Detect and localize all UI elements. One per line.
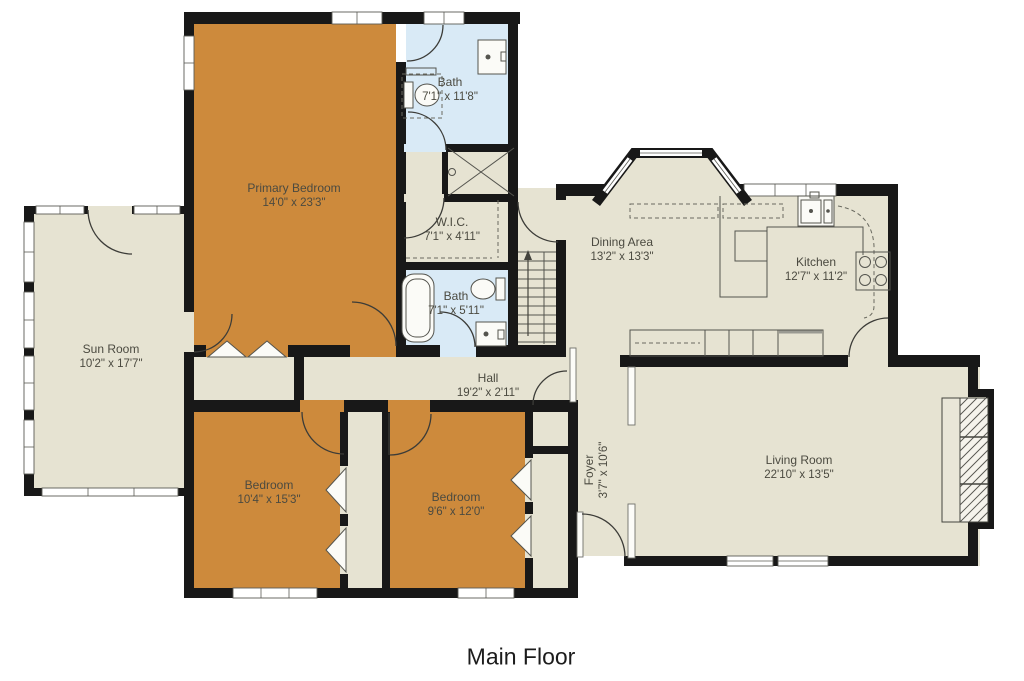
room-dims: 13'2" x 13'3" (590, 250, 653, 265)
kitchen-sink-icon (798, 192, 834, 226)
floor-plan-page: Primary Bedroom 14'0" x 23'3" Bath 7'1" … (0, 0, 1024, 681)
room-label-living-room: Living Room 22'10" x 13'5" (764, 453, 833, 483)
room-label-foyer: Foyer 3'7" x 10'6" (582, 442, 612, 499)
vanity-sink-icon (476, 322, 506, 346)
room-dims: 10'4" x 15'3" (237, 493, 300, 508)
room-dims: 7'1" x 11'8" (422, 90, 478, 105)
room-dims: 9'6" x 12'0" (428, 505, 485, 520)
window (332, 12, 382, 24)
room-name: Dining Area (590, 235, 653, 250)
room-label-hall: Hall 19'2" x 2'11" (457, 371, 519, 401)
window (184, 36, 194, 90)
room-label-sun-room: Sun Room 10'2" x 17'7" (79, 342, 142, 372)
room-name: Bath (422, 75, 478, 90)
room-label-dining-area: Dining Area 13'2" x 13'3" (590, 235, 653, 265)
room-dims: 14'0" x 23'3" (247, 196, 340, 211)
room-name: Bath (428, 289, 484, 304)
room-dims: 10'2" x 17'7" (79, 357, 142, 372)
room-name: Bedroom (428, 490, 485, 505)
fireplace-icon (942, 398, 988, 522)
floor-plan-drawing (0, 0, 1024, 681)
room-name: Foyer (582, 442, 597, 499)
window (744, 184, 836, 196)
room-label-wic: W.I.C. 7'1" x 4'11" (424, 215, 480, 245)
window (424, 12, 464, 24)
room-label-bath-2: Bath 7'1" x 5'11" (428, 289, 484, 319)
window (24, 222, 34, 474)
front-door-leaf (577, 512, 583, 557)
room-dims: 12'7" x 11'2" (785, 270, 847, 285)
shower-icon (478, 40, 506, 74)
room-label-bath-1: Bath 7'1" x 11'8" (422, 75, 478, 105)
room-name: Living Room (764, 453, 833, 468)
room-dims: 22'10" x 13'5" (764, 468, 833, 483)
room-dims: 19'2" x 2'11" (457, 386, 519, 401)
room-name: Bedroom (237, 478, 300, 493)
room-label-kitchen: Kitchen 12'7" x 11'2" (785, 255, 847, 285)
room-label-bedroom-1: Bedroom 10'4" x 15'3" (237, 478, 300, 508)
room-name: Hall (457, 371, 519, 386)
room-name: Kitchen (785, 255, 847, 270)
room-name: Primary Bedroom (247, 181, 340, 196)
floor-caption: Main Floor (467, 644, 576, 671)
room-label-bedroom-2: Bedroom 9'6" x 12'0" (428, 490, 485, 520)
room-name: Sun Room (79, 342, 142, 357)
room-name: W.I.C. (424, 215, 480, 230)
room-dims: 7'1" x 4'11" (424, 230, 480, 245)
room-dims: 7'1" x 5'11" (428, 304, 484, 319)
room-label-primary-bedroom: Primary Bedroom 14'0" x 23'3" (247, 181, 340, 211)
room-dims: 3'7" x 10'6" (597, 442, 612, 499)
